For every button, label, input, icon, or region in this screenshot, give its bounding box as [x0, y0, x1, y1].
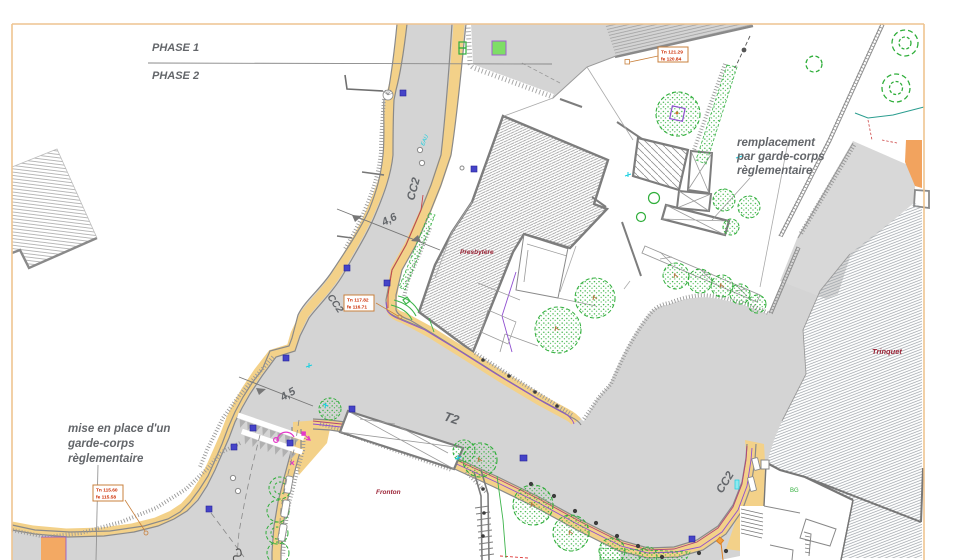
svg-text:fe 116.71: fe 116.71	[347, 305, 367, 311]
svg-text:par garde-corps: par garde-corps	[736, 151, 825, 163]
svg-text:remplacement: remplacement	[737, 137, 816, 149]
svg-text:Presbytère: Presbytère	[460, 249, 494, 256]
svg-text:règlementaire: règlementaire	[68, 453, 144, 465]
svg-text:règlementaire: règlementaire	[737, 165, 813, 177]
svg-text:PHASE 1: PHASE 1	[152, 42, 199, 54]
svg-text:BG: BG	[790, 488, 799, 494]
svg-text:Tn 115.60: Tn 115.60	[96, 488, 118, 494]
svg-text:PHASE 2: PHASE 2	[152, 70, 199, 82]
svg-text:fe 120.84: fe 120.84	[661, 57, 682, 63]
svg-text:fe 115.58: fe 115.58	[96, 495, 116, 501]
svg-text:Tn 121.29: Tn 121.29	[661, 50, 683, 56]
svg-text:Trinquet: Trinquet	[872, 347, 902, 356]
svg-text:garde-corps: garde-corps	[67, 438, 134, 450]
svg-text:Fronton: Fronton	[376, 489, 401, 496]
svg-text:mise en place d'un: mise en place d'un	[68, 423, 170, 435]
svg-text:Tn 117.82: Tn 117.82	[347, 298, 369, 304]
